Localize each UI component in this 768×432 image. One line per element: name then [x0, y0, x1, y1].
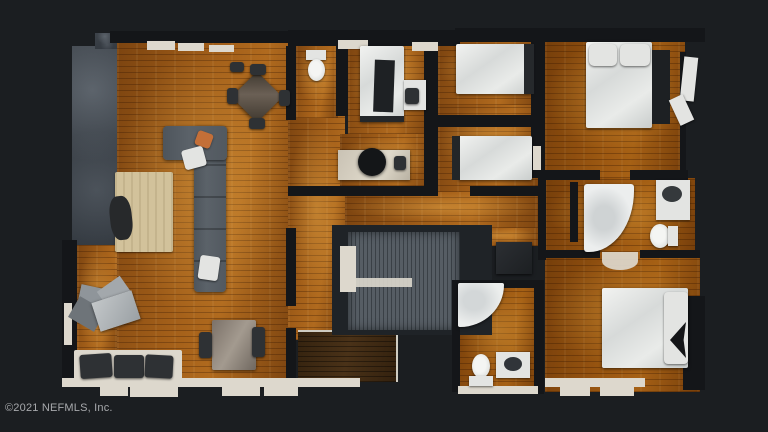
watermark: ©2021 NEFMLS, Inc. [5, 402, 113, 414]
sink-bowl [662, 186, 682, 202]
bed-footboard [360, 116, 404, 122]
wall-office-bottom-a [288, 186, 438, 196]
middle-bedroom-upper-bed [456, 44, 532, 94]
stair-landing [340, 246, 356, 292]
dining-chair [227, 88, 238, 104]
wall-halfbath-bedroom [336, 46, 348, 116]
window-sill [533, 146, 541, 170]
wall-bedroom-east [424, 42, 438, 192]
counter-stool [79, 353, 113, 379]
dark-dresser [496, 242, 532, 274]
lower-hallway-floor [345, 192, 540, 228]
toilet-tank [469, 376, 493, 386]
toilet-bowl [650, 224, 670, 248]
bay-window [222, 383, 260, 396]
bed-pillow [620, 44, 650, 66]
middle-bedroom-lower-bed [458, 136, 532, 180]
window-sill [147, 41, 175, 50]
wall-bottom-bathroom [458, 386, 538, 394]
desk-chair [405, 88, 419, 104]
bed-frame [452, 136, 460, 180]
bay-window [100, 384, 128, 396]
table-chair [252, 327, 265, 357]
bed-headboard [652, 50, 670, 124]
window-sill [412, 42, 438, 51]
wall-living-hall-c [286, 328, 296, 382]
counter-stool [144, 354, 173, 378]
toilet-bowl [308, 59, 325, 81]
dining-chair [230, 62, 244, 72]
window-sill [209, 45, 234, 52]
office-chair [358, 148, 386, 176]
bay-window [600, 384, 634, 396]
wall-office-bottom-b [470, 186, 540, 196]
wall-living-hall-a [286, 46, 296, 120]
dining-chair [279, 90, 290, 106]
entry-hall-floor [298, 330, 398, 382]
door-swing-arc [602, 252, 638, 270]
dark-blanket [373, 60, 395, 113]
wall-between-mid-bedrooms [438, 115, 534, 127]
office-item [394, 156, 406, 170]
table-chair [199, 332, 212, 358]
counter-stool [114, 355, 144, 378]
bay-window [264, 383, 298, 396]
wall-hall-east-edge [538, 175, 546, 260]
wall-right-bath-west [570, 182, 578, 242]
bay-window [560, 385, 590, 396]
bed-pillow [589, 44, 617, 66]
toilet-bowl [472, 354, 490, 378]
wall-top-living [110, 31, 298, 43]
wall-right-bedroom-bottom-a [545, 170, 600, 180]
wall-top-right [455, 28, 705, 42]
sink-bowl [504, 357, 522, 371]
door-left [64, 303, 72, 345]
bed-headboard [524, 44, 534, 94]
wall-bottom-bath-right [534, 280, 544, 394]
floor-plan-screenshot: ©2021 NEFMLS, Inc. [0, 0, 768, 432]
window-sill [178, 43, 204, 51]
wall-bath-bedroom-b [640, 250, 700, 258]
bay-window [130, 384, 178, 397]
wall-right-bedroom-bottom-b [630, 170, 688, 180]
stair-landing-edge [355, 278, 412, 287]
throw-pillow-white [197, 255, 220, 282]
dining-chair [250, 64, 266, 75]
square-table [212, 320, 256, 370]
dining-chair [249, 118, 265, 129]
toilet-tank [668, 226, 678, 246]
wall-living-hall-b [286, 228, 296, 306]
